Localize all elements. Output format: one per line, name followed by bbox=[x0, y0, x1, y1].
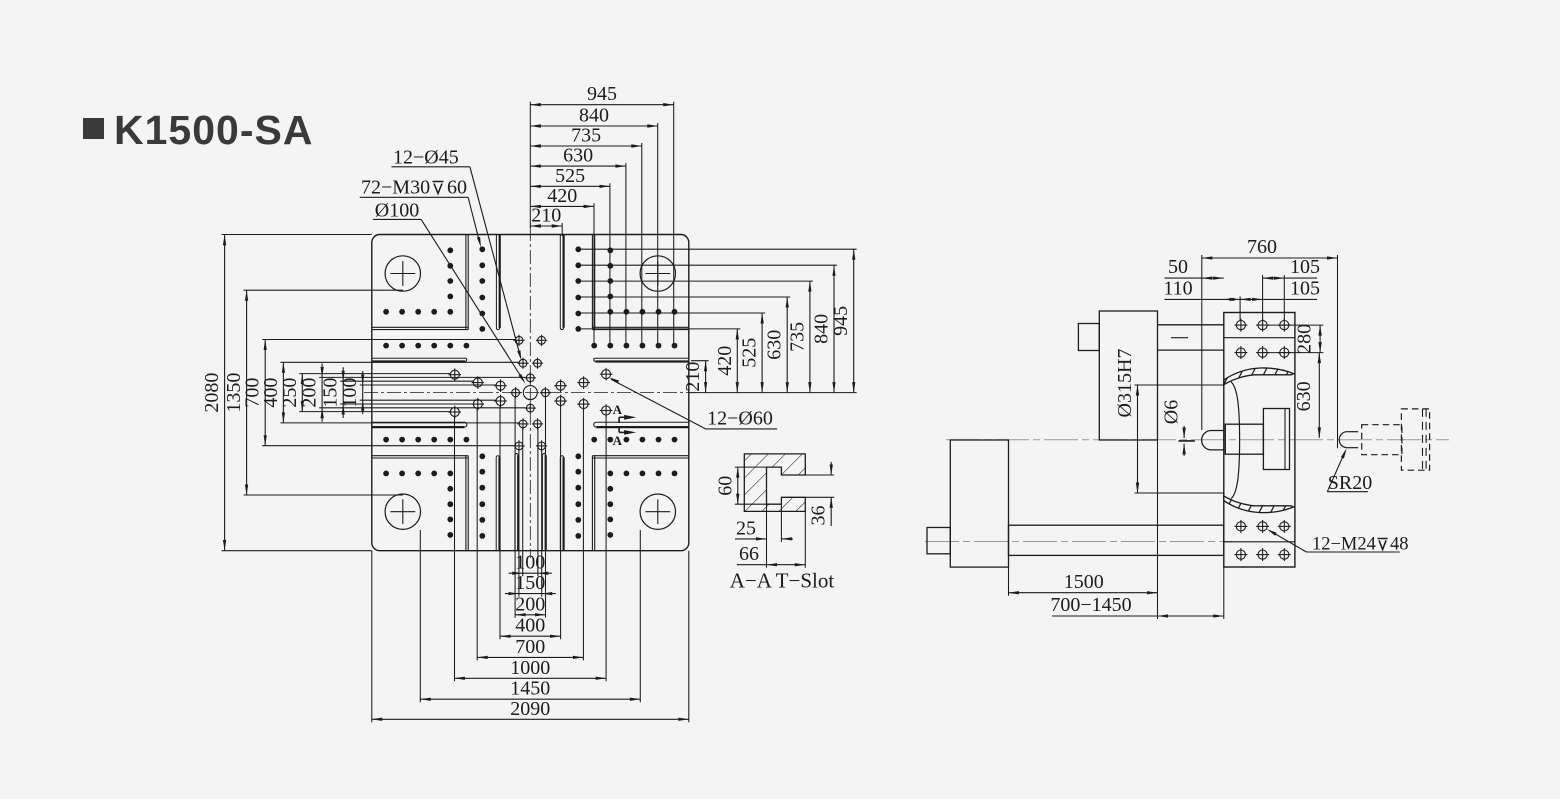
svg-text:1500: 1500 bbox=[1064, 571, 1104, 593]
svg-text:66: 66 bbox=[739, 543, 759, 565]
svg-text:735: 735 bbox=[571, 125, 601, 147]
svg-text:12−Ø60: 12−Ø60 bbox=[707, 408, 773, 430]
svg-text:Ø315H7: Ø315H7 bbox=[1114, 349, 1136, 418]
svg-text:945: 945 bbox=[587, 83, 617, 105]
svg-text:400: 400 bbox=[515, 615, 545, 637]
svg-text:250: 250 bbox=[279, 378, 301, 408]
svg-text:630: 630 bbox=[1293, 381, 1315, 411]
svg-text:A−A T−Slot: A−A T−Slot bbox=[730, 569, 835, 593]
svg-text:200: 200 bbox=[515, 593, 545, 615]
svg-text:36: 36 bbox=[808, 506, 830, 526]
svg-text:150: 150 bbox=[515, 572, 545, 594]
svg-text:420: 420 bbox=[714, 346, 736, 376]
svg-text:1000: 1000 bbox=[510, 657, 550, 679]
svg-text:2090: 2090 bbox=[510, 698, 550, 720]
svg-text:525: 525 bbox=[555, 165, 585, 187]
svg-text:A: A bbox=[613, 402, 623, 417]
svg-text:50: 50 bbox=[1168, 256, 1188, 278]
svg-text:60: 60 bbox=[447, 177, 467, 199]
svg-text:630: 630 bbox=[563, 145, 593, 167]
svg-text:A: A bbox=[613, 433, 623, 448]
svg-text:630: 630 bbox=[764, 330, 786, 360]
svg-text:735: 735 bbox=[786, 322, 808, 352]
svg-text:25: 25 bbox=[736, 517, 756, 539]
svg-text:100: 100 bbox=[339, 378, 361, 408]
svg-text:2080: 2080 bbox=[201, 373, 223, 413]
svg-text:210: 210 bbox=[531, 205, 561, 227]
svg-text:105: 105 bbox=[1290, 256, 1320, 278]
svg-text:525: 525 bbox=[739, 338, 761, 368]
svg-text:Ø100: Ø100 bbox=[375, 200, 419, 222]
svg-text:200: 200 bbox=[299, 378, 321, 408]
svg-text:700: 700 bbox=[515, 636, 545, 658]
svg-text:100: 100 bbox=[515, 552, 545, 574]
svg-text:72−M30: 72−M30 bbox=[361, 177, 430, 199]
svg-text:840: 840 bbox=[811, 314, 833, 344]
svg-text:Ø6: Ø6 bbox=[1161, 400, 1183, 424]
svg-text:840: 840 bbox=[579, 105, 609, 127]
svg-text:105: 105 bbox=[1290, 278, 1320, 300]
svg-text:60: 60 bbox=[714, 476, 736, 496]
svg-text:1450: 1450 bbox=[510, 678, 550, 700]
svg-text:12−Ø45: 12−Ø45 bbox=[393, 147, 459, 169]
svg-text:700−1450: 700−1450 bbox=[1050, 594, 1131, 616]
svg-text:760: 760 bbox=[1247, 236, 1277, 258]
svg-text:210: 210 bbox=[682, 362, 704, 392]
svg-text:K1500-SA: K1500-SA bbox=[114, 107, 313, 153]
svg-text:280: 280 bbox=[1294, 324, 1316, 354]
svg-text:110: 110 bbox=[1163, 278, 1192, 300]
